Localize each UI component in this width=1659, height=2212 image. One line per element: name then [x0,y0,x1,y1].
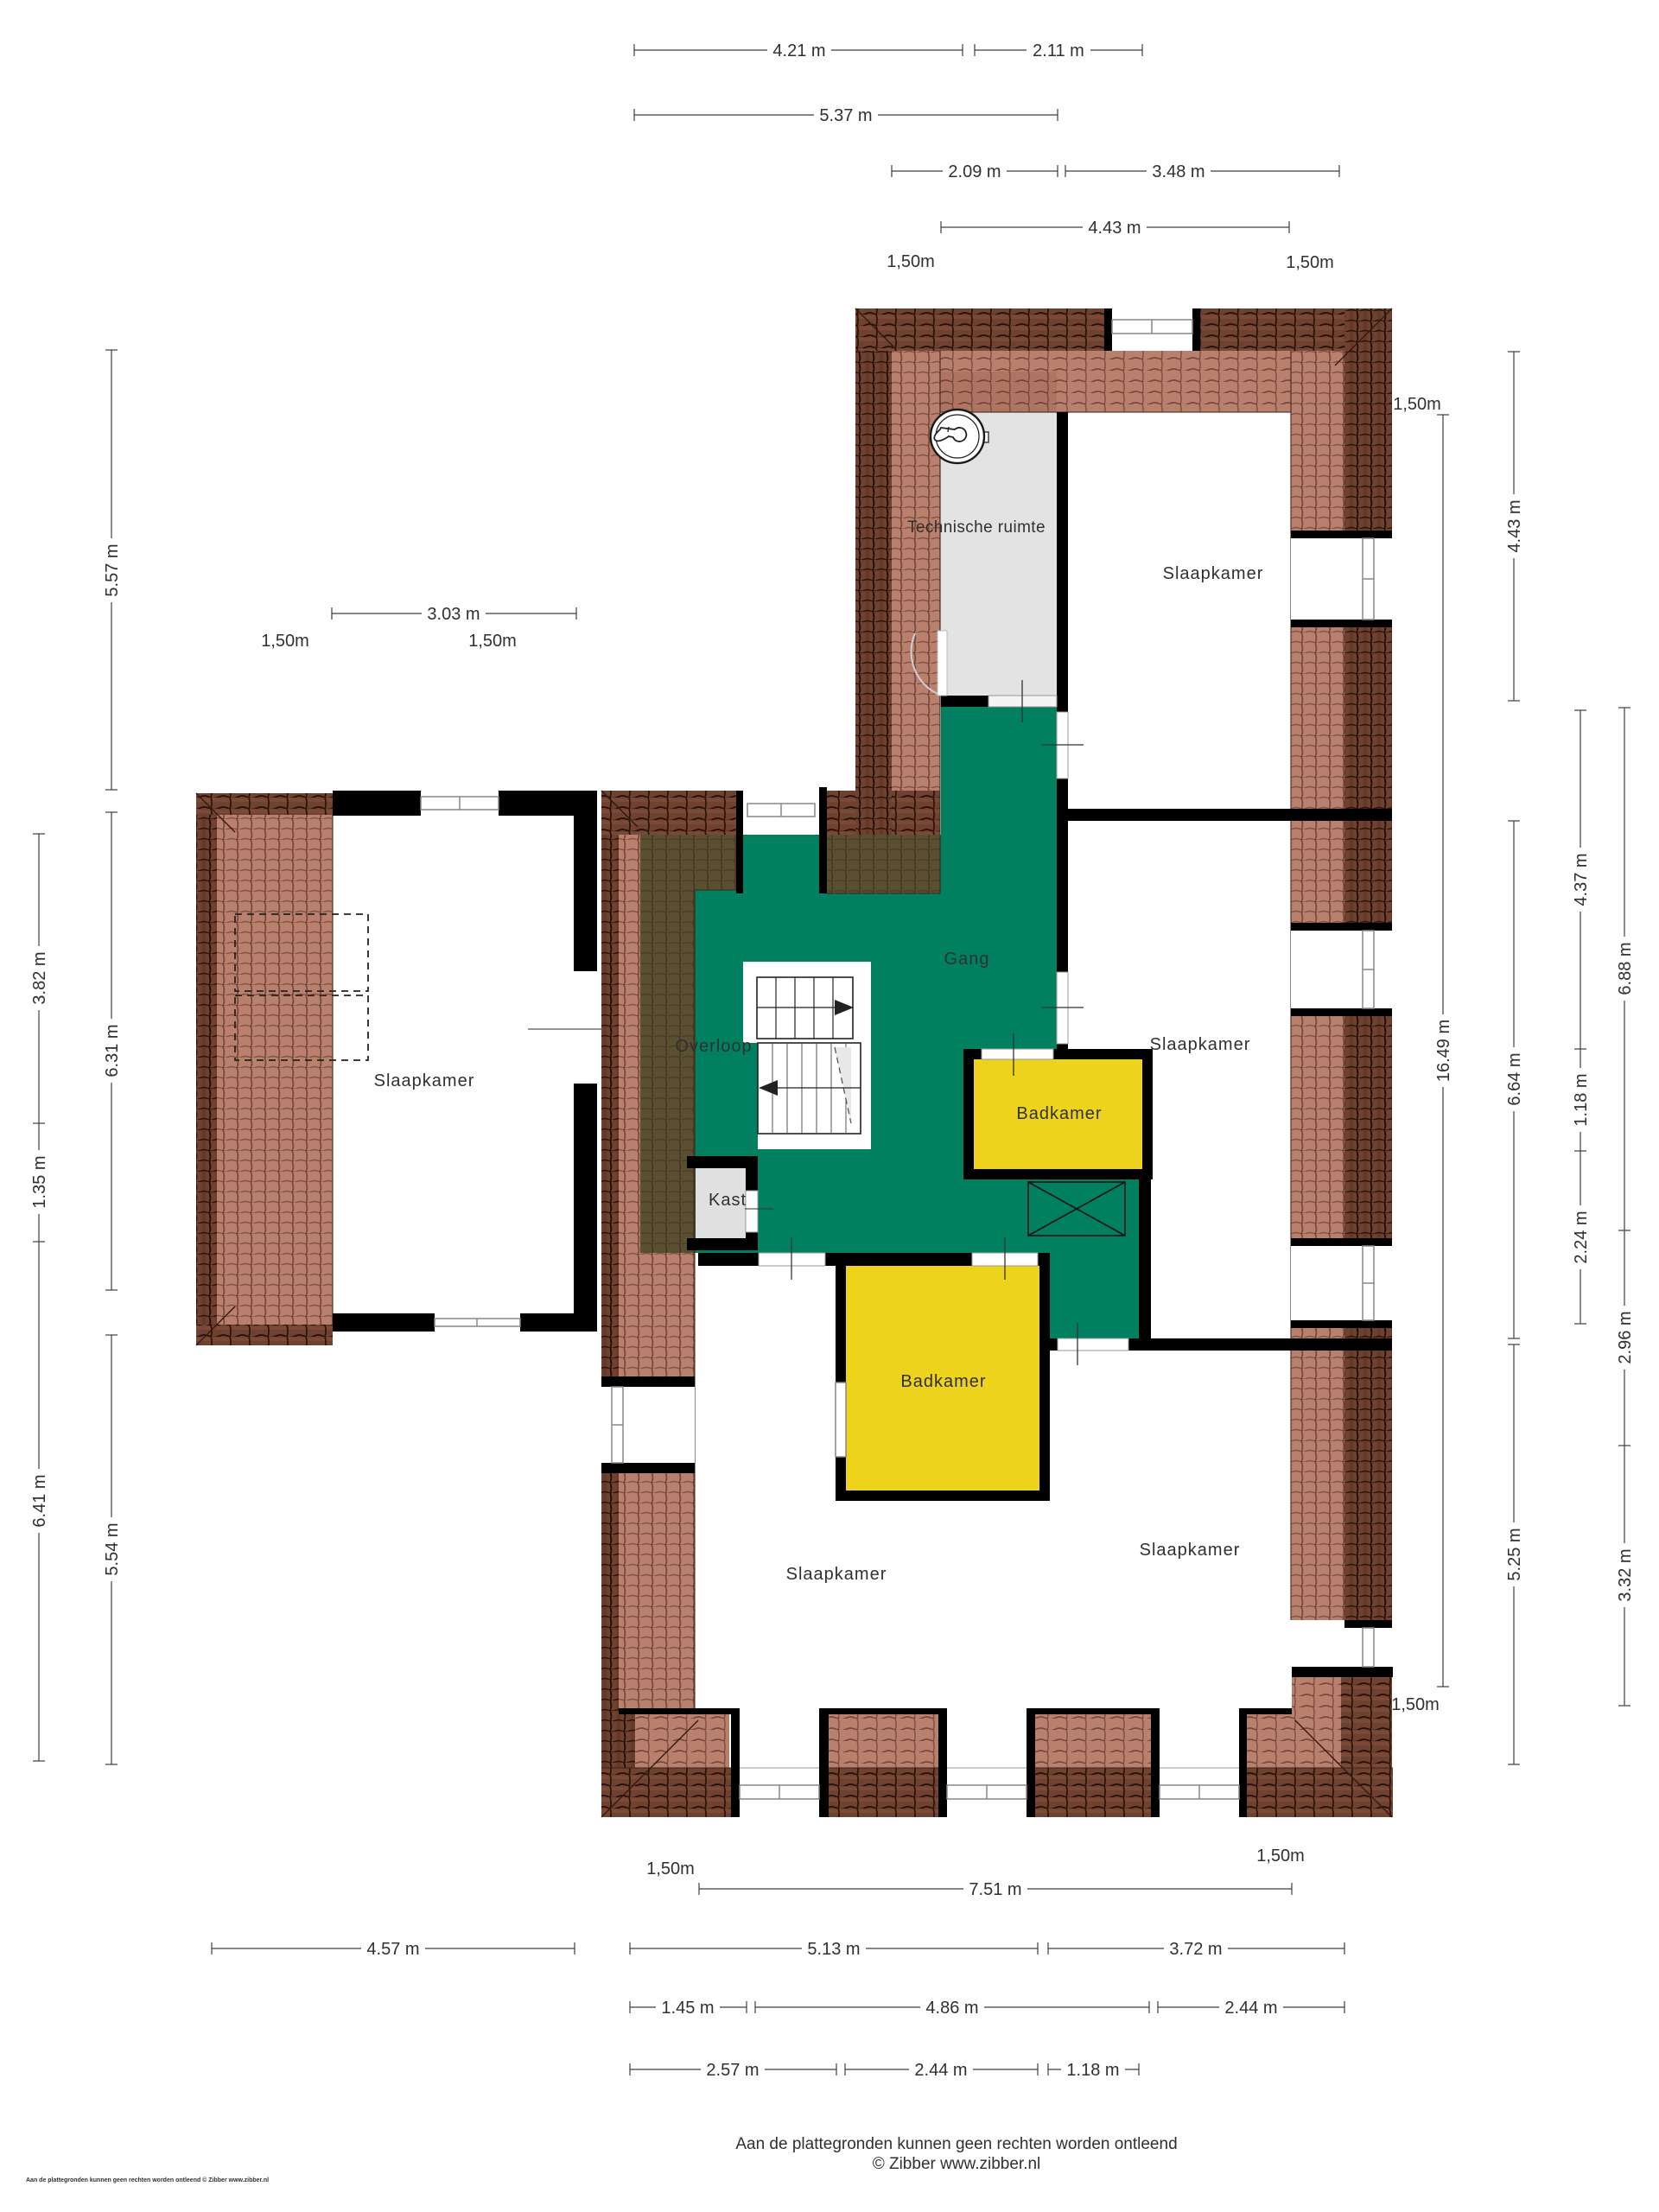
svg-text:2.09 m: 2.09 m [948,162,1001,181]
svg-text:Technische ruimte: Technische ruimte [907,518,1046,537]
svg-text:2.44 m: 2.44 m [1224,1999,1277,2018]
svg-text:1,50m: 1,50m [887,252,935,271]
svg-text:6.88 m: 6.88 m [1616,942,1635,995]
svg-text:Slaapkamer: Slaapkamer [1163,564,1264,583]
svg-text:3.48 m: 3.48 m [1152,162,1205,181]
svg-text:7.51 m: 7.51 m [969,1880,1021,1899]
svg-text:1,50m: 1,50m [646,1859,695,1878]
svg-text:3.03 m: 3.03 m [427,605,480,624]
svg-text:2.24 m: 2.24 m [1572,1211,1591,1263]
svg-text:Badkamer: Badkamer [1016,1104,1102,1123]
svg-text:5.37 m: 5.37 m [819,106,872,125]
svg-text:6.31 m: 6.31 m [103,1024,122,1077]
svg-text:4.21 m: 4.21 m [772,41,825,60]
svg-text:6.64 m: 6.64 m [1505,1052,1524,1105]
svg-text:1,50m: 1,50m [261,632,309,651]
svg-text:Gang: Gang [944,950,990,969]
svg-text:Badkamer: Badkamer [900,1372,986,1391]
svg-text:Slaapkamer: Slaapkamer [786,1565,887,1584]
svg-text:2.96 m: 2.96 m [1616,1311,1635,1363]
svg-text:1.18 m: 1.18 m [1572,1073,1591,1126]
svg-text:Slaapkamer: Slaapkamer [1150,1035,1251,1054]
svg-text:1,50m: 1,50m [1256,1847,1305,1866]
svg-text:3.82 m: 3.82 m [30,951,49,1004]
svg-text:2.11 m: 2.11 m [1033,41,1084,60]
svg-text:2.57 m: 2.57 m [706,2061,759,2080]
svg-text:Aan de plattegronden kunnen ge: Aan de plattegronden kunnen geen rechten… [735,2135,1177,2153]
svg-text:4.43 m: 4.43 m [1088,219,1141,238]
svg-text:5.57 m: 5.57 m [103,543,122,596]
svg-text:6.41 m: 6.41 m [30,1474,49,1527]
svg-text:1,50m: 1,50m [1391,1695,1440,1714]
svg-text:5.25 m: 5.25 m [1505,1528,1524,1580]
svg-text:Kast: Kast [709,1191,747,1210]
svg-text:3.72 m: 3.72 m [1169,1940,1222,1959]
svg-text:4.37 m: 4.37 m [1572,853,1591,906]
svg-text:5.54 m: 5.54 m [103,1522,122,1575]
svg-text:Slaapkamer: Slaapkamer [1140,1541,1241,1560]
svg-text:© Zibber www.zibber.nl: © Zibber www.zibber.nl [873,2155,1041,2173]
svg-text:Aan de plattegronden kunnen ge: Aan de plattegronden kunnen geen rechten… [26,2177,269,2183]
svg-text:4.43 m: 4.43 m [1505,499,1524,552]
svg-text:3.32 m: 3.32 m [1616,1548,1635,1601]
svg-text:16.49 m: 16.49 m [1434,1020,1453,1082]
svg-text:1.45 m: 1.45 m [661,1999,714,2018]
svg-text:4.86 m: 4.86 m [925,1999,978,2018]
svg-text:1.35 m: 1.35 m [30,1155,49,1208]
svg-text:4.57 m: 4.57 m [366,1940,419,1959]
svg-text:1.18 m: 1.18 m [1066,2061,1119,2080]
svg-text:1,50m: 1,50m [468,632,517,651]
svg-text:5.13 m: 5.13 m [807,1940,860,1959]
svg-text:Slaapkamer: Slaapkamer [374,1071,475,1090]
svg-text:1,50m: 1,50m [1286,253,1334,272]
svg-text:1,50m: 1,50m [1393,395,1441,414]
svg-text:2.44 m: 2.44 m [914,2061,967,2080]
svg-text:Overloop: Overloop [675,1037,752,1056]
